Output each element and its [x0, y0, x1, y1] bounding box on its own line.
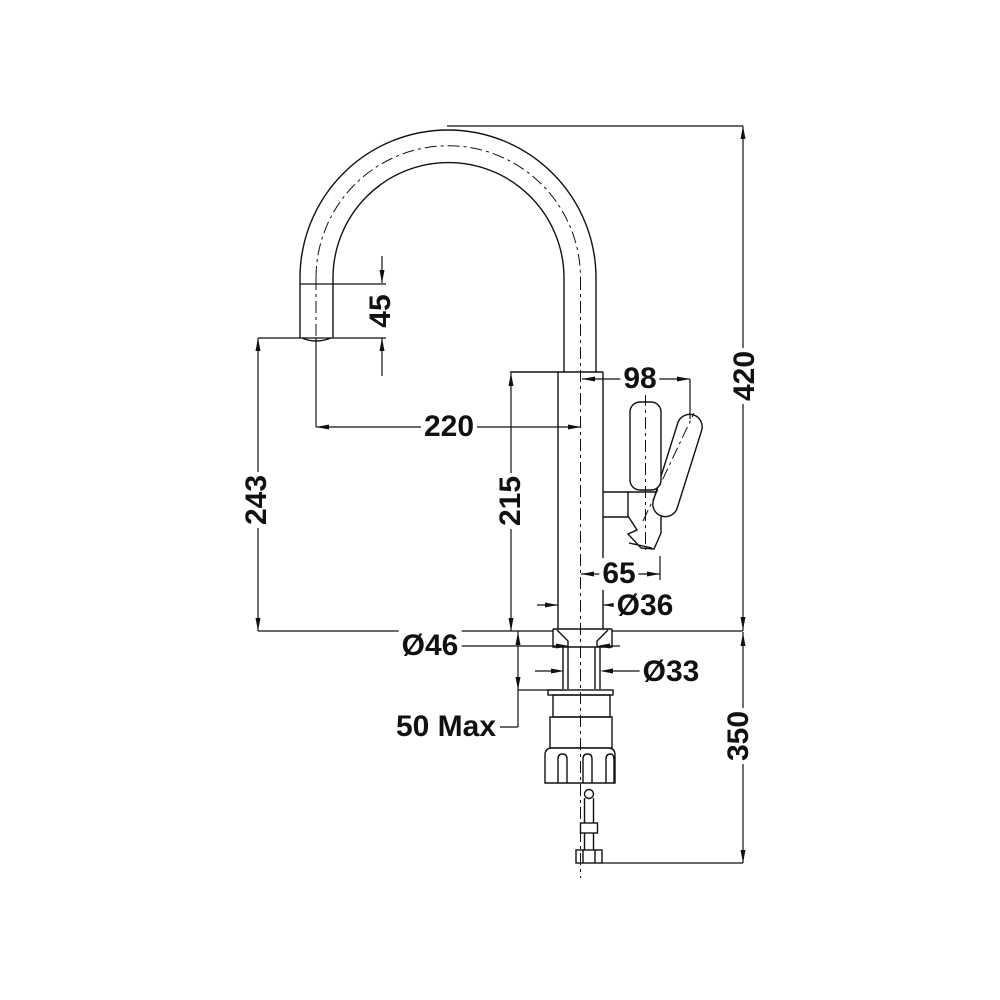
faucet-dimension-diagram: 45 420 98 220 243 215 65 Ø36 Ø46 Ø33 50 …	[0, 0, 1000, 1000]
hex-nut	[576, 850, 602, 863]
dim-label-body-height: 215	[495, 473, 527, 529]
handle	[628, 402, 705, 549]
dim-label-outlet-height: 243	[241, 472, 273, 528]
dim-label-shank-diameter: Ø33	[640, 656, 703, 688]
dim-label-spout-reach: 220	[421, 411, 477, 443]
dim-label-spout-tip: 45	[365, 291, 397, 330]
dim-label-counter-thickness: 50 Max	[393, 711, 499, 743]
dim-label-under-counter-depth: 350	[723, 708, 755, 764]
dim-label-handle-offset: 98	[620, 363, 659, 395]
spout-outline	[300, 130, 596, 372]
dim-label-base-diameter: Ø46	[399, 630, 462, 662]
hose-end	[585, 790, 594, 799]
dim-label-overall-height: 420	[729, 348, 761, 404]
base-flange	[553, 629, 612, 647]
faucet-body	[510, 372, 628, 629]
dim-label-handle-reach: 65	[599, 558, 638, 590]
dim-label-body-diameter: Ø36	[614, 590, 677, 622]
